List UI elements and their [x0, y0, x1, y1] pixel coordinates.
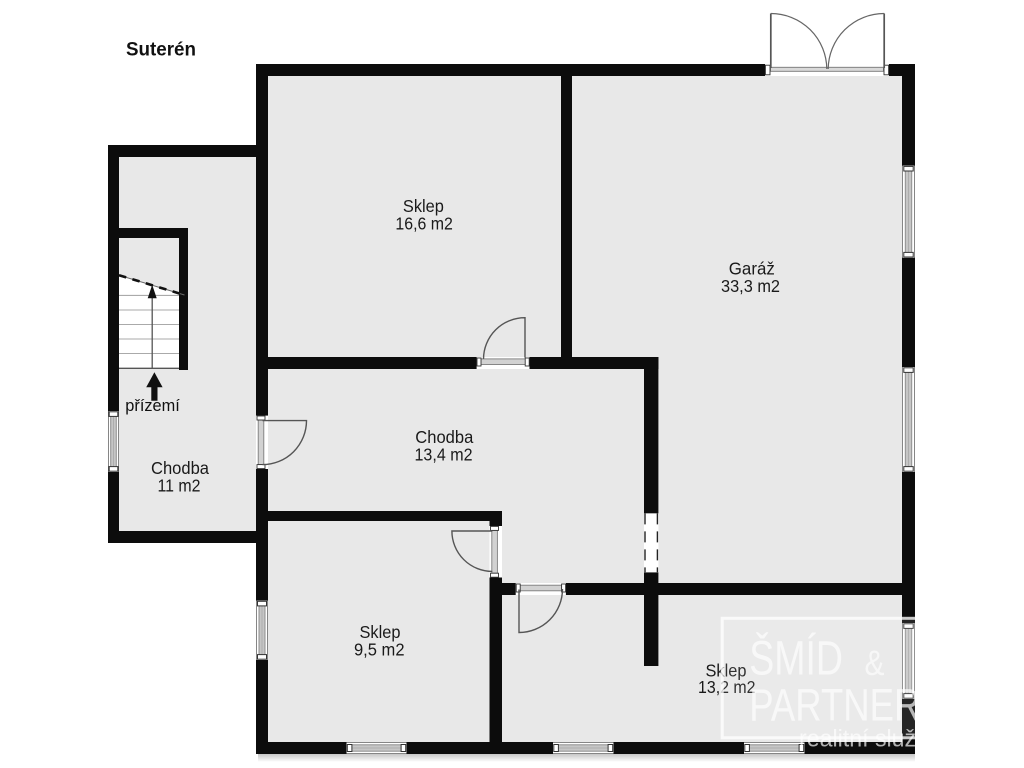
svg-text:9,5 m2: 9,5 m2 [354, 639, 405, 659]
svg-text:16,6 m2: 16,6 m2 [395, 213, 453, 233]
svg-text:&: & [865, 644, 885, 683]
svg-text:Suterén: Suterén [126, 40, 196, 61]
svg-text:13,4 m2: 13,4 m2 [415, 444, 473, 464]
svg-text:přízemí: přízemí [125, 397, 180, 415]
svg-text:PARTNER: PARTNER [749, 679, 920, 730]
svg-text:realitní služb: realitní služb [799, 726, 929, 753]
svg-text:11 m2: 11 m2 [158, 476, 201, 496]
svg-text:33,3 m2: 33,3 m2 [721, 276, 780, 296]
svg-text:ŠMÍD: ŠMÍD [749, 632, 843, 686]
